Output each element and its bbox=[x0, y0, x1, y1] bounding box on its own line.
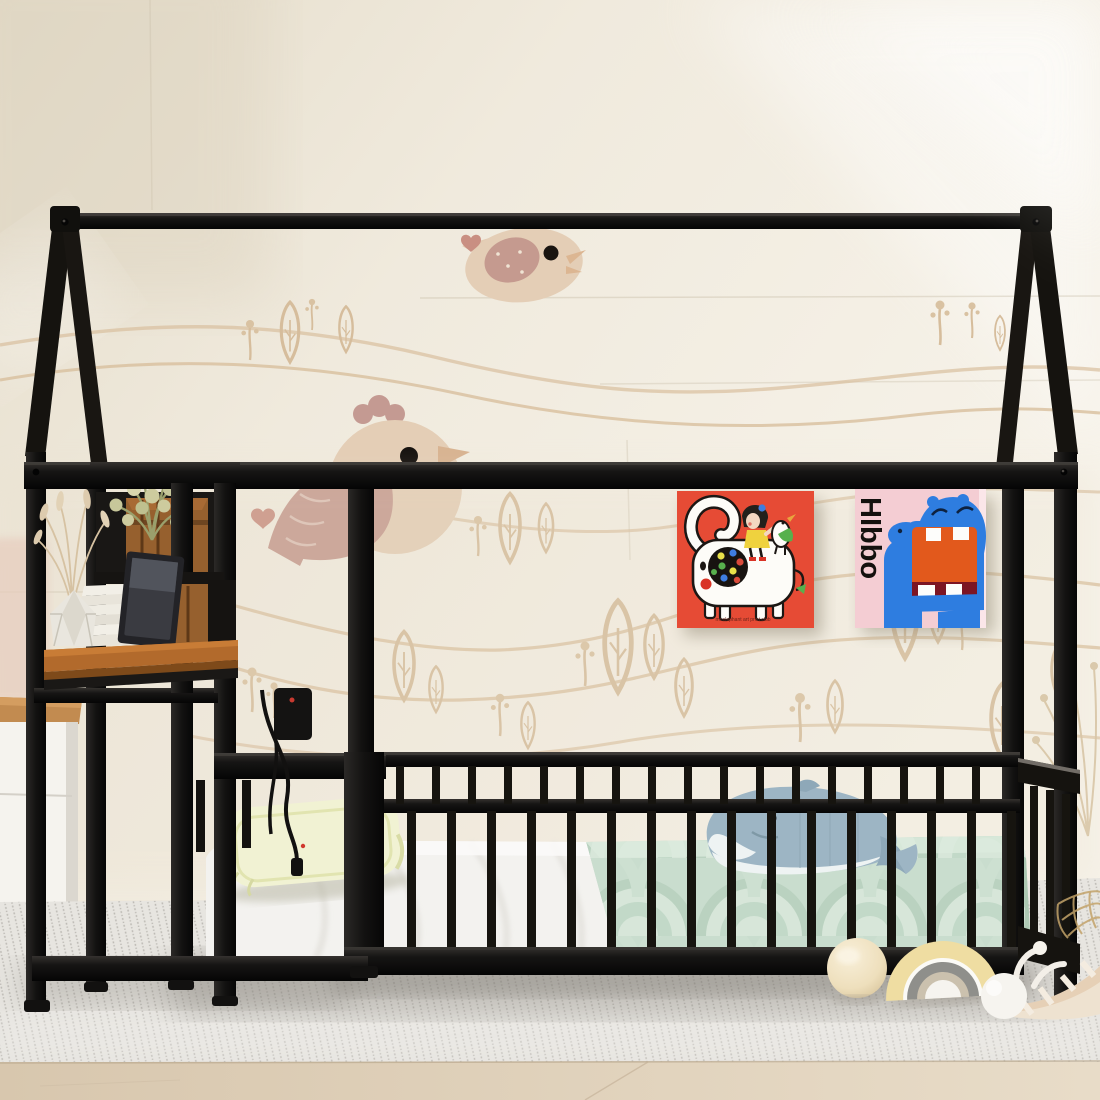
svg-text:mr.elephant art print club: mr.elephant art print club bbox=[715, 617, 770, 623]
svg-text:HIbbo: HIbbo bbox=[854, 497, 886, 579]
